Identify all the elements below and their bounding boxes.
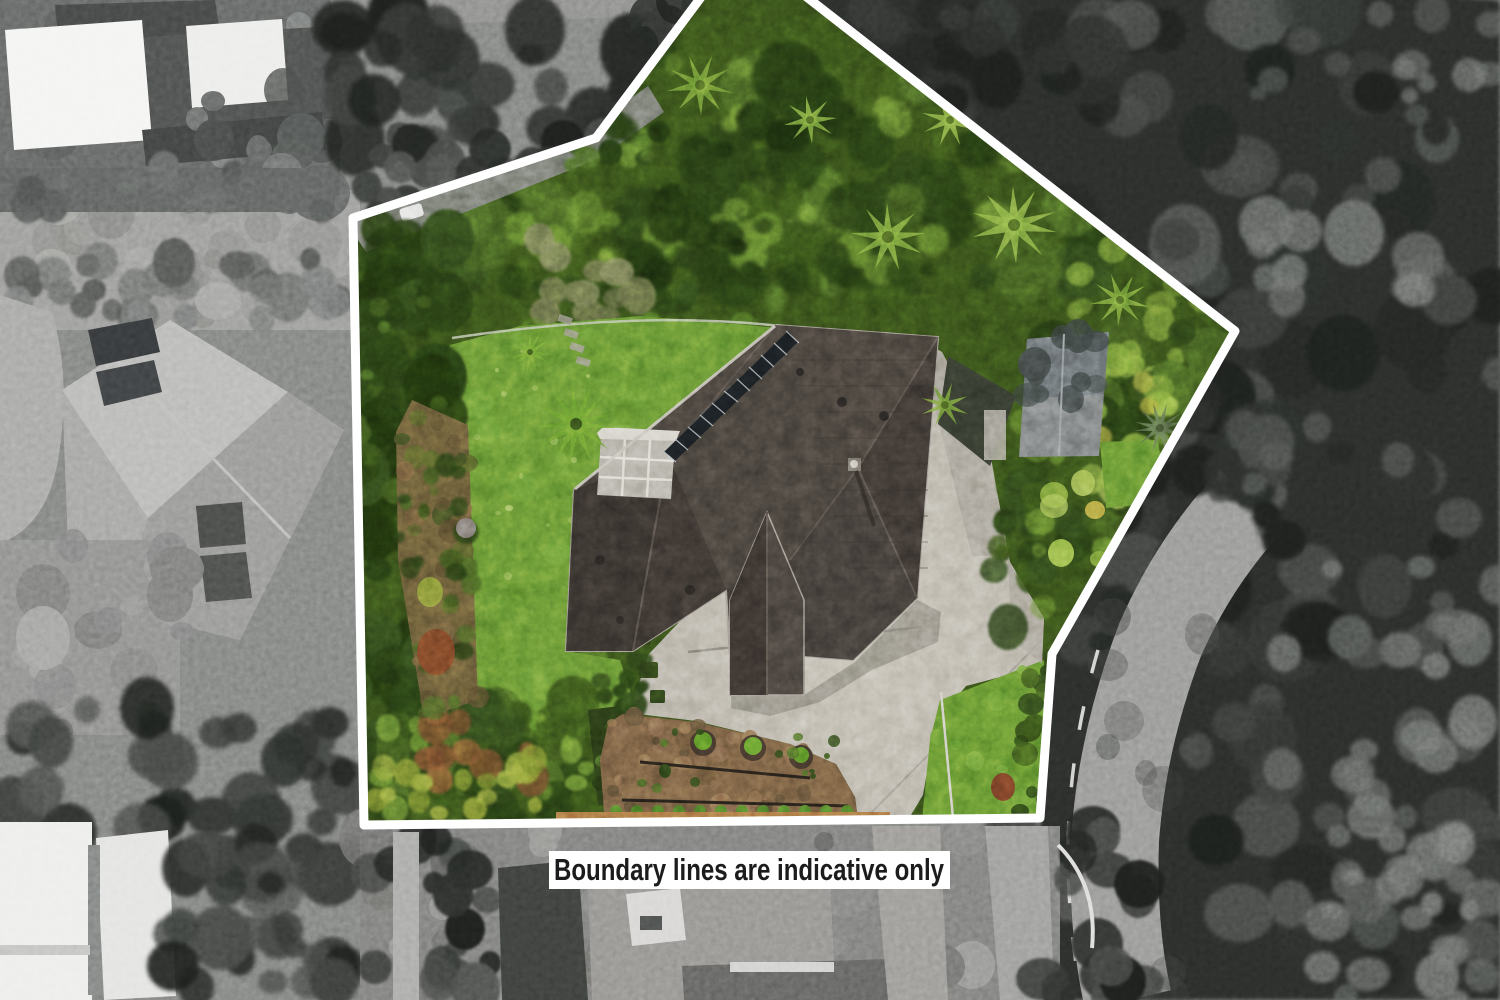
svg-text:Boundary lines are indicative: Boundary lines are indicative only bbox=[554, 852, 945, 887]
